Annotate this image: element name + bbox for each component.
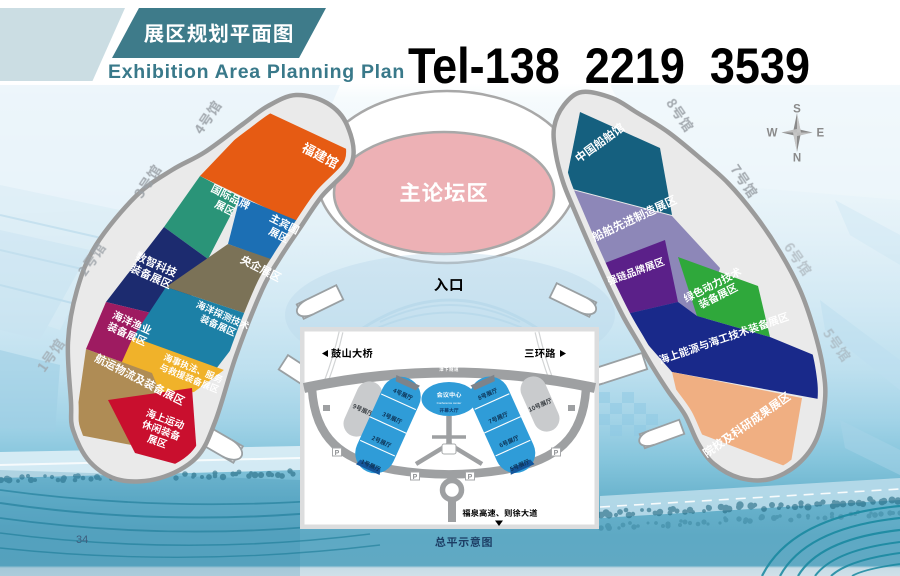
svg-text:E: E bbox=[817, 128, 825, 140]
svg-text:P: P bbox=[335, 450, 340, 457]
svg-text:W: W bbox=[767, 128, 778, 140]
svg-text:P: P bbox=[468, 474, 473, 481]
svg-text:Conference center: Conference center bbox=[437, 401, 462, 405]
svg-text:P: P bbox=[554, 450, 559, 457]
svg-text:P: P bbox=[413, 474, 418, 481]
svg-text:N: N bbox=[793, 153, 801, 165]
svg-text:34: 34 bbox=[76, 534, 88, 546]
svg-text:S: S bbox=[793, 104, 801, 116]
